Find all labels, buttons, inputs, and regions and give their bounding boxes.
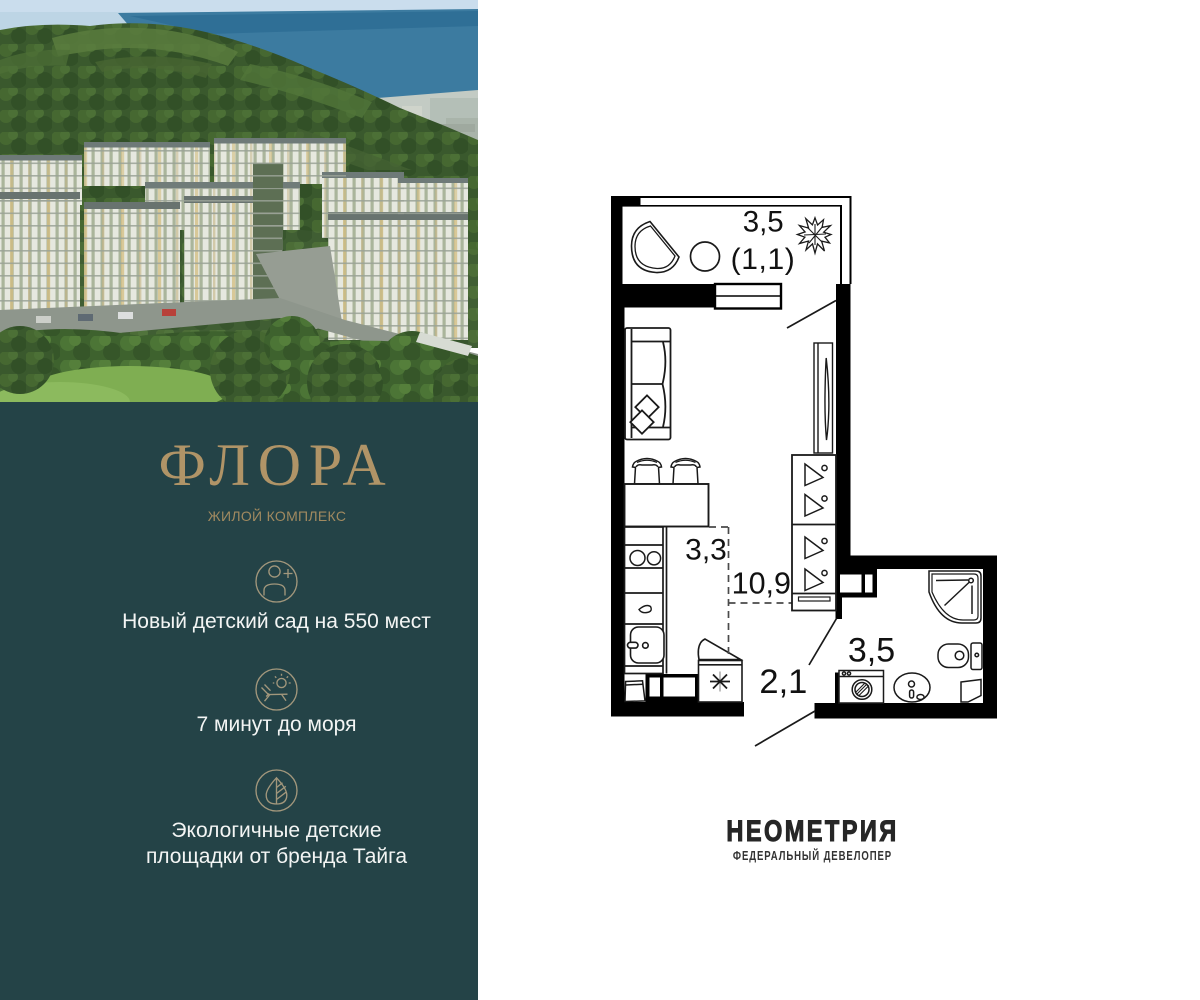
svg-text:2,1: 2,1 [759, 663, 807, 701]
svg-text:3,3: 3,3 [685, 534, 727, 567]
svg-text:3,5: 3,5 [743, 206, 784, 239]
svg-text:10,9: 10,9 [732, 567, 791, 601]
svg-text:(1,1): (1,1) [731, 243, 796, 276]
svg-text:3,5: 3,5 [848, 632, 895, 670]
